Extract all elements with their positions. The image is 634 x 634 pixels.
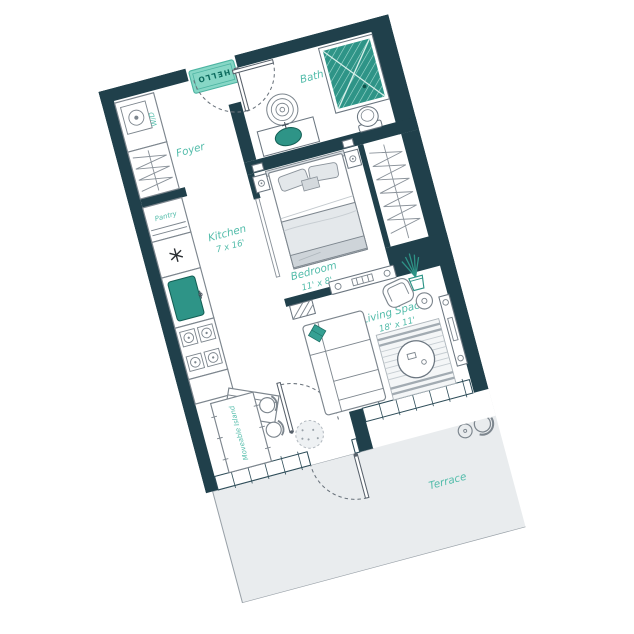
floorplan: Terrace — [98, 14, 525, 605]
floorplan-canvas: Terrace — [0, 0, 634, 634]
floorplan-svg: Terrace — [98, 14, 525, 605]
